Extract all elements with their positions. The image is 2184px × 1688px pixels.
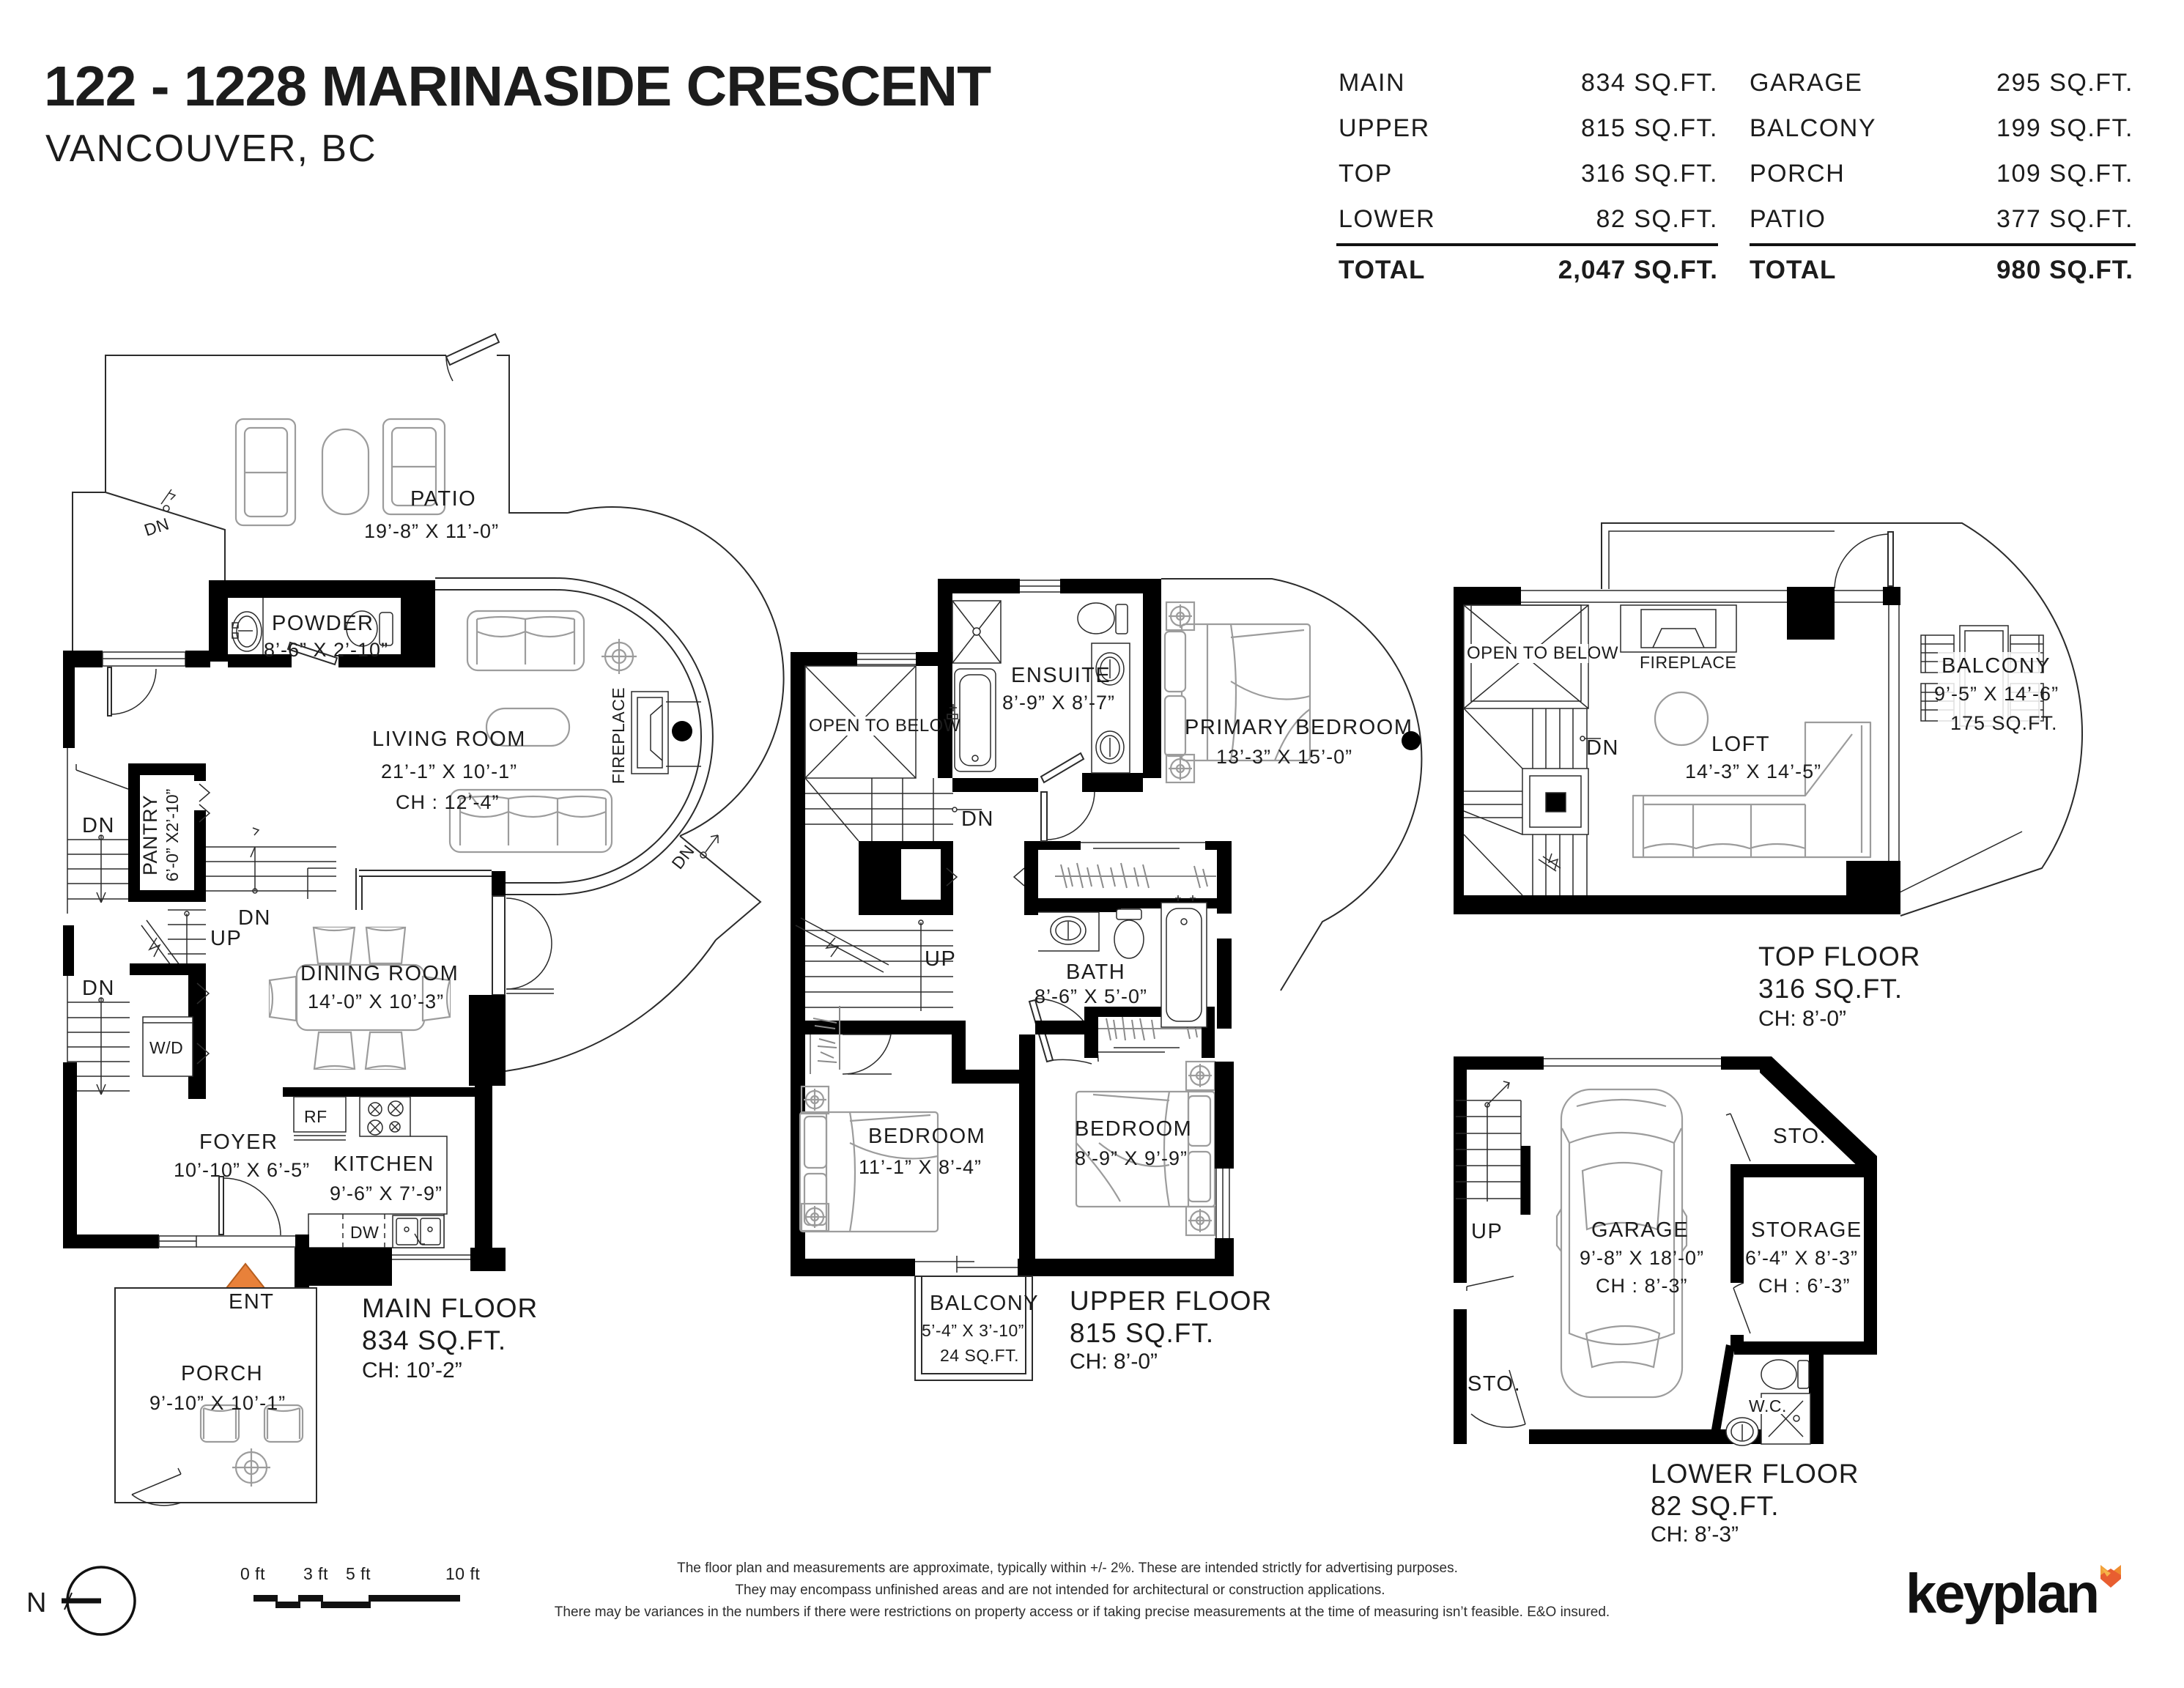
svg-text:8’-9” X 9’-9”: 8’-9” X 9’-9” [1075, 1147, 1188, 1169]
svg-text:82 SQ.FT.: 82 SQ.FT. [1596, 205, 1718, 233]
svg-text:122 - 1228 MARINASIDE CRESCENT: 122 - 1228 MARINASIDE CRESCENT [44, 55, 991, 118]
svg-text:CH : 12’-4”: CH : 12’-4” [396, 791, 500, 813]
svg-text:316 SQ.FT.: 316 SQ.FT. [1758, 974, 1903, 1004]
svg-text:POWDER: POWDER [272, 612, 374, 635]
svg-text:377 SQ.FT.: 377 SQ.FT. [1996, 205, 2133, 233]
svg-text:199 SQ.FT.: 199 SQ.FT. [1996, 114, 2133, 142]
svg-text:ENSUITE: ENSUITE [1011, 664, 1111, 687]
svg-text:9’-8” X 18’-0”: 9’-8” X 18’-0” [1580, 1247, 1704, 1269]
svg-text:UPPER: UPPER [1339, 114, 1430, 142]
svg-text:14’-3” X 14’-5”: 14’-3” X 14’-5” [1685, 760, 1821, 782]
svg-text:N: N [26, 1588, 46, 1618]
svg-text:W/D: W/D [149, 1038, 183, 1057]
svg-text:175 SQ.FT.: 175 SQ.FT. [1950, 712, 2058, 734]
svg-text:STORAGE: STORAGE [1751, 1218, 1862, 1242]
svg-text:STO.: STO. [1467, 1372, 1521, 1396]
svg-text:BALCONY: BALCONY [1750, 114, 1876, 142]
svg-text:STO.: STO. [1773, 1125, 1826, 1148]
svg-text:PORCH: PORCH [1750, 160, 1845, 188]
svg-text:UPPER FLOOR: UPPER FLOOR [1070, 1286, 1272, 1316]
svg-text:815 SQ.FT.: 815 SQ.FT. [1070, 1318, 1214, 1348]
svg-text:PATIO: PATIO [1750, 205, 1826, 233]
svg-text:14’-0” X 10’-3”: 14’-0” X 10’-3” [308, 991, 444, 1013]
svg-text:13’-3” X 15’-0”: 13’-3” X 15’-0” [1216, 746, 1352, 768]
svg-text:8’-6” X 5’-0”: 8’-6” X 5’-0” [1034, 985, 1147, 1007]
svg-text:LOWER: LOWER [1339, 205, 1435, 233]
svg-text:OPEN TO BELOW: OPEN TO BELOW [1467, 643, 1618, 663]
svg-text:DN: DN [82, 977, 115, 1000]
svg-text:CH : 6’-3”: CH : 6’-3” [1758, 1275, 1851, 1297]
svg-text:MAIN: MAIN [1339, 69, 1405, 97]
svg-text:2,047 SQ.FT.: 2,047 SQ.FT. [1558, 256, 1718, 284]
svg-text:KITCHEN: KITCHEN [333, 1152, 434, 1176]
svg-text:6’-0” X2’-10”: 6’-0” X2’-10” [163, 789, 182, 882]
svg-text:CH: 8’-0”: CH: 8’-0” [1070, 1350, 1158, 1374]
svg-text:UP: UP [925, 947, 956, 971]
svg-text:TOP FLOOR: TOP FLOOR [1758, 941, 1920, 971]
svg-text:980 SQ.FT.: 980 SQ.FT. [1996, 256, 2133, 284]
svg-text:There may be variances in the: There may be variances in the numbers if… [555, 1604, 1610, 1620]
svg-text:10 ft: 10 ft [445, 1564, 480, 1583]
svg-text:DN: DN [1586, 736, 1619, 760]
svg-text:GARAGE: GARAGE [1591, 1218, 1689, 1242]
svg-text:5’-4” X 3’-10”: 5’-4” X 3’-10” [922, 1321, 1024, 1340]
svg-text:ENT: ENT [229, 1290, 275, 1314]
svg-text:DN: DN [238, 906, 271, 930]
svg-text:3 ft: 3 ft [303, 1564, 328, 1583]
svg-text:The floor plan and measurement: The floor plan and measurements are appr… [677, 1561, 1458, 1576]
svg-text:21’-1” X 10’-1”: 21’-1” X 10’-1” [381, 760, 517, 782]
svg-text:They may encompass unfinished: They may encompass unfinished areas and … [735, 1582, 1385, 1598]
svg-text:CH: 8’-0”: CH: 8’-0” [1758, 1007, 1846, 1031]
svg-text:834 SQ.FT.: 834 SQ.FT. [1581, 69, 1718, 97]
svg-text:FIREPLACE: FIREPLACE [1640, 653, 1736, 672]
svg-text:PATIO: PATIO [410, 487, 476, 511]
svg-text:11’-1” X 8’-4”: 11’-1” X 8’-4” [859, 1156, 982, 1178]
svg-text:DN: DN [961, 807, 994, 831]
svg-text:BEDROOM: BEDROOM [868, 1125, 985, 1148]
svg-text:UP: UP [1471, 1220, 1503, 1243]
svg-text:PRIMARY BEDROOM: PRIMARY BEDROOM [1185, 716, 1413, 739]
svg-text:BALCONY: BALCONY [1941, 654, 2051, 678]
svg-text:CH: 8’-3”: CH: 8’-3” [1651, 1522, 1739, 1547]
svg-text:6’-4” X 8’-3”: 6’-4” X 8’-3” [1745, 1247, 1858, 1269]
svg-text:BEDROOM: BEDROOM [1075, 1117, 1192, 1141]
svg-text:VANCOUVER, BC: VANCOUVER, BC [45, 127, 377, 170]
svg-text:LIVING ROOM: LIVING ROOM [372, 728, 526, 751]
svg-text:BALCONY: BALCONY [930, 1292, 1039, 1315]
svg-text:9’-5” X 14’-6”: 9’-5” X 14’-6” [1934, 683, 2059, 705]
svg-text:TOTAL: TOTAL [1750, 256, 1836, 284]
svg-text:TOP: TOP [1339, 160, 1393, 188]
svg-text:0 ft: 0 ft [240, 1564, 265, 1583]
svg-text:8’-6” X 2’-10”: 8’-6” X 2’-10” [264, 639, 388, 661]
svg-text:BATH: BATH [1066, 960, 1125, 984]
svg-text:CH : 8’-3”: CH : 8’-3” [1596, 1275, 1688, 1297]
svg-text:TOTAL: TOTAL [1339, 256, 1425, 284]
svg-text:19’-8” X 11’-0”: 19’-8” X 11’-0” [364, 520, 499, 542]
svg-text:DN: DN [82, 814, 115, 837]
svg-text:PANTRY: PANTRY [139, 795, 161, 876]
svg-text:GARAGE: GARAGE [1750, 69, 1862, 97]
svg-text:OPEN TO BELOW: OPEN TO BELOW [809, 716, 960, 736]
svg-text:CH: 10’-2”: CH: 10’-2” [362, 1358, 462, 1382]
svg-text:316 SQ.FT.: 316 SQ.FT. [1581, 160, 1718, 188]
svg-text:FOYER: FOYER [199, 1130, 278, 1154]
svg-text:LOWER FLOOR: LOWER FLOOR [1651, 1459, 1859, 1489]
svg-text:keyplan: keyplan [1906, 1563, 2098, 1625]
svg-text:MAIN FLOOR: MAIN FLOOR [362, 1293, 538, 1323]
svg-text:5 ft: 5 ft [346, 1564, 371, 1583]
svg-text:82 SQ.FT.: 82 SQ.FT. [1651, 1491, 1780, 1521]
svg-text:109 SQ.FT.: 109 SQ.FT. [1996, 160, 2133, 188]
svg-text:9’-6” X 7’-9”: 9’-6” X 7’-9” [330, 1182, 443, 1204]
svg-text:W.C.: W.C. [1749, 1396, 1787, 1415]
svg-text:815 SQ.FT.: 815 SQ.FT. [1581, 114, 1718, 142]
svg-text:PORCH: PORCH [181, 1362, 263, 1385]
svg-text:FIREPLACE: FIREPLACE [609, 687, 628, 784]
svg-text:9’-10” X 10’-1”: 9’-10” X 10’-1” [149, 1392, 286, 1414]
svg-text:295 SQ.FT.: 295 SQ.FT. [1996, 69, 2133, 97]
svg-text:24 SQ.FT.: 24 SQ.FT. [940, 1346, 1019, 1365]
svg-text:8’-9” X 8’-7”: 8’-9” X 8’-7” [1002, 692, 1115, 714]
svg-text:DW: DW [350, 1223, 379, 1242]
svg-text:LOFT: LOFT [1711, 733, 1770, 756]
svg-text:RF: RF [304, 1107, 327, 1126]
svg-text:UP: UP [210, 927, 242, 950]
svg-text:10’-10” X 6’-5”: 10’-10” X 6’-5” [174, 1159, 310, 1181]
svg-text:DINING ROOM: DINING ROOM [300, 962, 459, 985]
svg-text:834 SQ.FT.: 834 SQ.FT. [362, 1325, 506, 1355]
